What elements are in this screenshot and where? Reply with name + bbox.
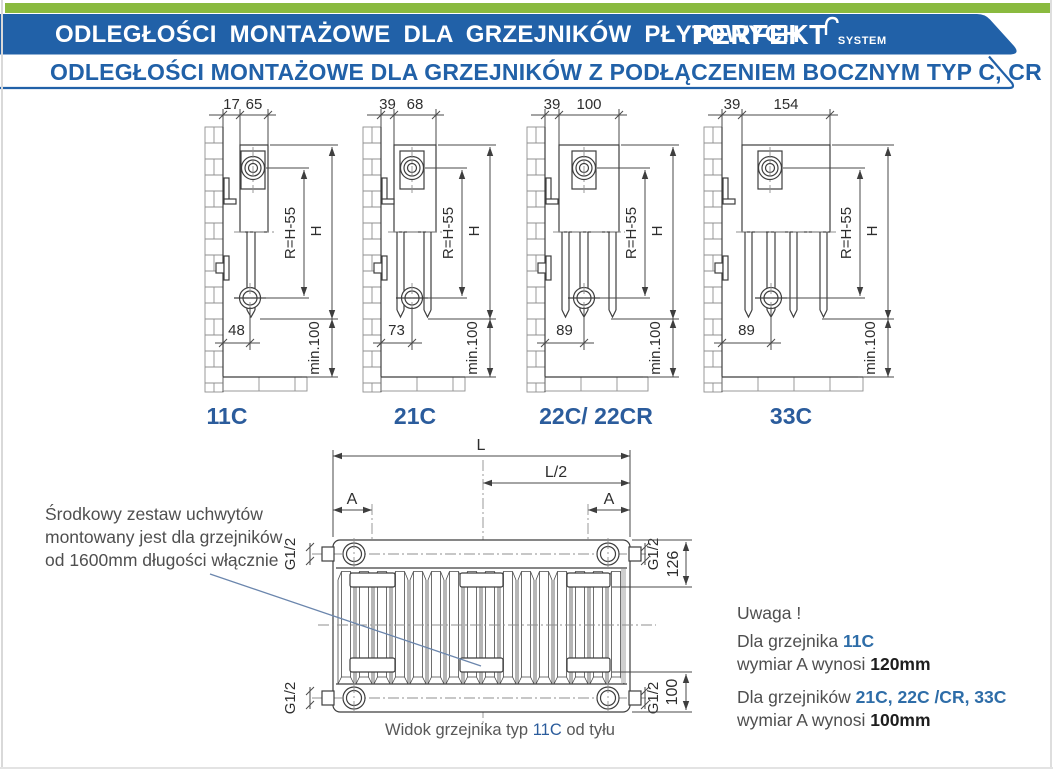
dim-label: G1/2: [282, 682, 299, 715]
uwaga-value-100: 100mm: [870, 710, 930, 730]
note-center-brackets: Środkowy zestaw uchwytów montowany jest …: [45, 503, 282, 572]
dim-label: 126: [665, 551, 682, 578]
page: ODLEGŁOŚCI MONTAŻOWE DLA GRZEJNIKÓW PŁYT…: [0, 0, 1053, 769]
dim-label: R=H-55: [623, 207, 640, 259]
dim-label: 154: [773, 96, 798, 113]
dim-label: 39: [724, 96, 741, 113]
caption-type: 11C: [533, 721, 562, 739]
rear-view-caption: Widok grzejnika typ 11C od tyłu: [350, 721, 650, 740]
type-label-33c: 33C: [770, 403, 812, 430]
note-line: od 1600mm długości włącznie: [45, 549, 282, 572]
dim-label: H: [466, 226, 483, 237]
dim-label: A: [347, 491, 358, 508]
dim-label: 48: [228, 322, 245, 339]
dim-label: R=H-55: [838, 207, 855, 259]
dim-label: G1/2: [282, 538, 299, 571]
scan-edge-left: [1, 0, 3, 769]
uwaga-type-11c: 11C: [843, 631, 874, 651]
dim-label: min.100: [464, 321, 481, 374]
type-label-11c: 11C: [207, 403, 248, 430]
uwaga-text: Dla grzejnika: [737, 631, 843, 651]
note-line: Środkowy zestaw uchwytów: [45, 503, 282, 526]
dim-label: H: [308, 226, 325, 237]
dim-label: R=H-55: [282, 207, 299, 259]
dim-label: 89: [738, 322, 755, 339]
type-label-21c: 21C: [394, 403, 436, 430]
dim-label: A: [604, 491, 615, 508]
dim-label: min.100: [862, 321, 879, 374]
dim-label: 39: [379, 96, 396, 113]
uwaga-line: Dla grzejnika 11C: [737, 632, 1006, 651]
dim-label: 65: [246, 96, 263, 113]
uwaga-text: wymiar A wynosi: [737, 654, 870, 674]
dim-label: L: [477, 437, 486, 454]
dim-label: 100: [576, 96, 601, 113]
dim-label: 39: [544, 96, 561, 113]
type-label-22c: 22C/ 22CR: [539, 403, 653, 430]
scan-edge-right: [1050, 0, 1052, 769]
dim-label: 17: [223, 96, 240, 113]
dim-label: H: [864, 226, 881, 237]
uwaga-text: Dla grzejników: [737, 687, 856, 707]
dim-label: 68: [407, 96, 424, 113]
caption-text: od tyłu: [562, 721, 615, 739]
note-line: montowany jest dla grzejników: [45, 526, 282, 549]
caption-text: Widok grzejnika typ: [385, 721, 533, 739]
uwaga-value-120: 120mm: [870, 654, 930, 674]
uwaga-text: wymiar A wynosi: [737, 710, 870, 730]
dim-label: min.100: [306, 321, 323, 374]
dim-label: G1/2: [645, 538, 662, 571]
uwaga-title: Uwaga !: [737, 604, 1006, 623]
dim-label: R=H-55: [440, 207, 457, 259]
dim-label: min.100: [647, 321, 664, 374]
dim-label: 89: [556, 322, 573, 339]
note-uwaga: Uwaga ! Dla grzejnika 11C wymiar A wynos…: [737, 604, 1006, 730]
uwaga-line: Dla grzejników 21C, 22C /CR, 33C: [737, 688, 1006, 707]
dim-label: G1/2: [645, 682, 662, 715]
uwaga-types: 21C, 22C /CR, 33C: [856, 687, 1007, 707]
dim-label: L/2: [545, 464, 567, 481]
dim-label: 73: [388, 322, 405, 339]
uwaga-line: wymiar A wynosi 100mm: [737, 711, 1006, 730]
uwaga-line: wymiar A wynosi 120mm: [737, 655, 1006, 674]
dim-label: H: [649, 226, 666, 237]
dim-label: 100: [664, 679, 681, 706]
